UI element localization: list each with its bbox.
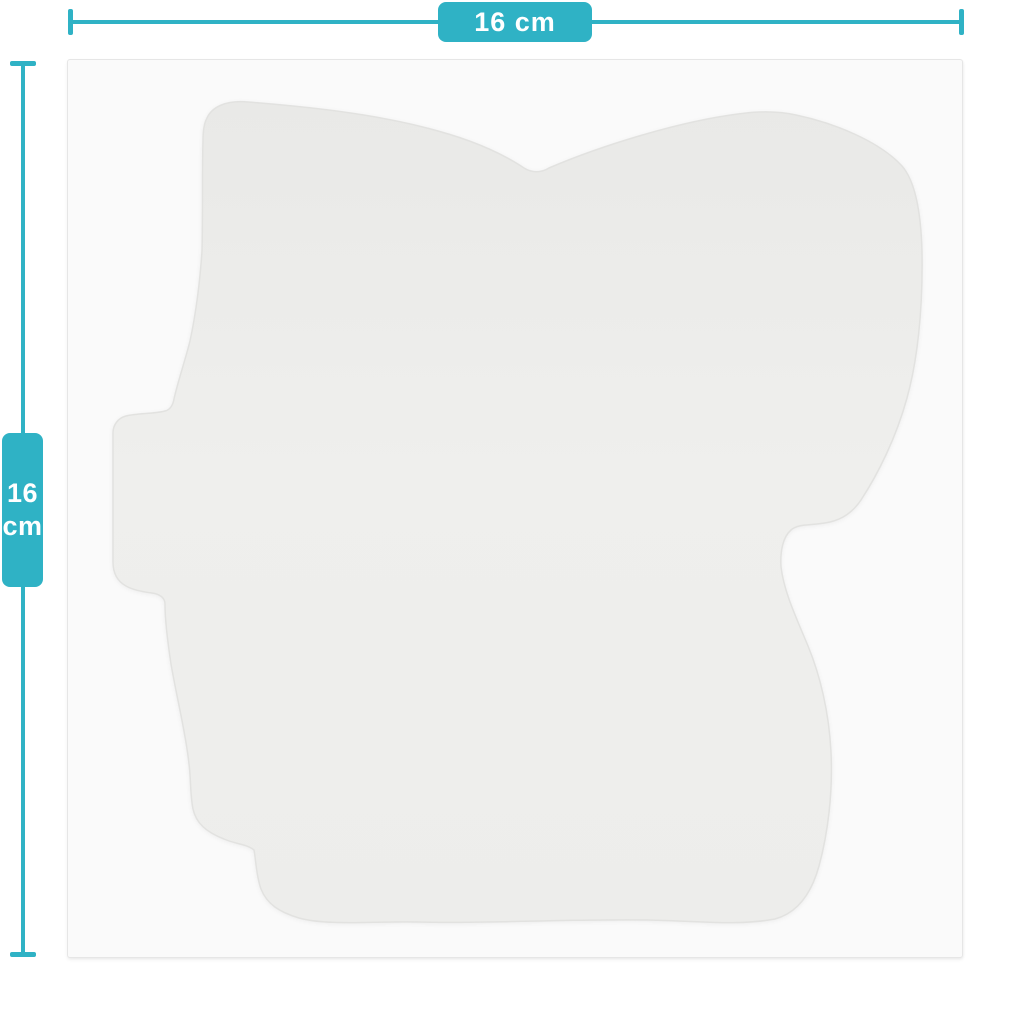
height-dimension-value: 16 [7,477,38,510]
width-dimension-label-text: 16 cm [474,7,556,38]
height-dimension-top-tick [10,61,36,66]
height-dimension-bottom-tick [10,952,36,957]
product-dimension-diagram: 16 cm 16 cm [0,0,1024,1024]
sticker-backing-sheet [67,59,963,958]
width-dimension-left-tick [68,9,73,35]
width-dimension-label: 16 cm [438,2,592,42]
height-dimension-label: 16 cm [2,433,43,587]
height-dimension-unit: cm [2,510,42,543]
width-dimension-right-tick [959,9,964,35]
